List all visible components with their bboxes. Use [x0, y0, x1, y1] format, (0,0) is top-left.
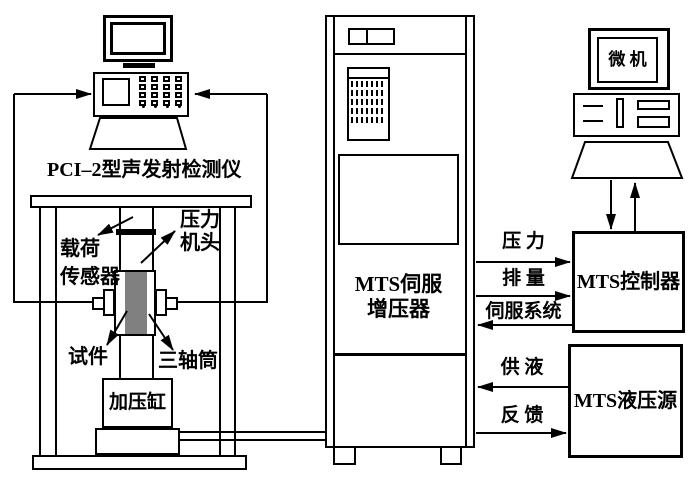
- pc-label: 微 机: [608, 50, 646, 70]
- press-head-label-line1: 压力: [180, 209, 220, 232]
- hydraulic-source-box: MTS液压源: [568, 344, 683, 458]
- pressure-cylinder-label: 加压缸: [109, 392, 166, 414]
- load-sensor-label-line2: 传感器: [60, 266, 120, 289]
- diagram-canvas: PCI–2型声发射检测仪 加压缸 载荷 传感器 压力 机头 试件 三轴筒 MTS…: [0, 0, 700, 481]
- cabinet-foot-left: [333, 446, 356, 465]
- cabinet-foot-right: [440, 446, 462, 465]
- ae-keyboard-icon: [90, 118, 186, 149]
- ae-keypad-dots: [142, 105, 190, 108]
- controller-box: MTS控制器: [572, 231, 685, 333]
- ae-monitor-stand: [123, 63, 155, 68]
- pc-keyboard-icon: [572, 142, 682, 178]
- pressure-cylinder-box: 加压缸: [102, 378, 173, 428]
- cabinet-switch-box: [348, 28, 395, 45]
- triaxial-cell-label: 三轴筒: [158, 350, 218, 373]
- frame-base-plate: [32, 455, 247, 470]
- booster-label-line1: MTS伺服: [338, 272, 459, 296]
- pc-unit-drive2: [637, 116, 670, 128]
- signal-supply-label: 供 液: [476, 357, 568, 379]
- piston-column: [119, 336, 154, 378]
- frame-column-left: [39, 208, 57, 455]
- load-sensor-label-line1: 载荷: [60, 238, 100, 261]
- signal-feedback-label: 反 馈: [476, 405, 568, 427]
- pc-unit-line2: [583, 120, 603, 122]
- vent-panel: [347, 79, 390, 141]
- pc-unit-line1: [583, 105, 603, 107]
- cabinet-top-divider: [333, 53, 467, 55]
- load-cell-band: [116, 229, 156, 235]
- booster-label-line2: 增压器: [338, 297, 459, 321]
- frame-column-right: [219, 208, 236, 455]
- ae-instrument-screen: [102, 78, 130, 106]
- ae-sensor-right-outer: [165, 297, 178, 310]
- ae-sensor-left-outer: [92, 297, 105, 310]
- controller-label: MTS控制器: [577, 271, 680, 294]
- pc-monitor-screen: 微 机: [597, 37, 658, 83]
- signal-servo-label: 伺服系统: [476, 301, 571, 323]
- ae-monitor-screen: [110, 22, 166, 55]
- press-head-label-line2: 机头: [180, 232, 220, 255]
- cabinet-rail-left: [333, 17, 335, 446]
- triaxial-cell-body: [114, 270, 156, 336]
- ae-keypad: [139, 76, 187, 108]
- cabinet-mid-divider: [333, 353, 467, 356]
- pc-unit-drive1: [637, 100, 670, 110]
- cabinet-rail-right: [465, 17, 467, 446]
- cabinet-switch-divider: [366, 29, 368, 44]
- frame-crossbeam: [30, 195, 252, 208]
- load-cell-column: [119, 208, 154, 270]
- cabinet-inner-panel: [338, 154, 459, 245]
- vent-panel-header: [347, 67, 390, 79]
- signal-displacement-label: 排 量: [476, 268, 571, 290]
- signal-pressure-label: 压 力: [476, 231, 571, 253]
- specimen-label: 试件: [68, 346, 108, 369]
- ae-station-label: PCI–2型声发射检测仪: [47, 159, 235, 182]
- pc-unit-slot: [616, 98, 624, 128]
- cylinder-pedestal: [95, 428, 180, 455]
- hydraulic-source-label: MTS液压源: [574, 390, 677, 413]
